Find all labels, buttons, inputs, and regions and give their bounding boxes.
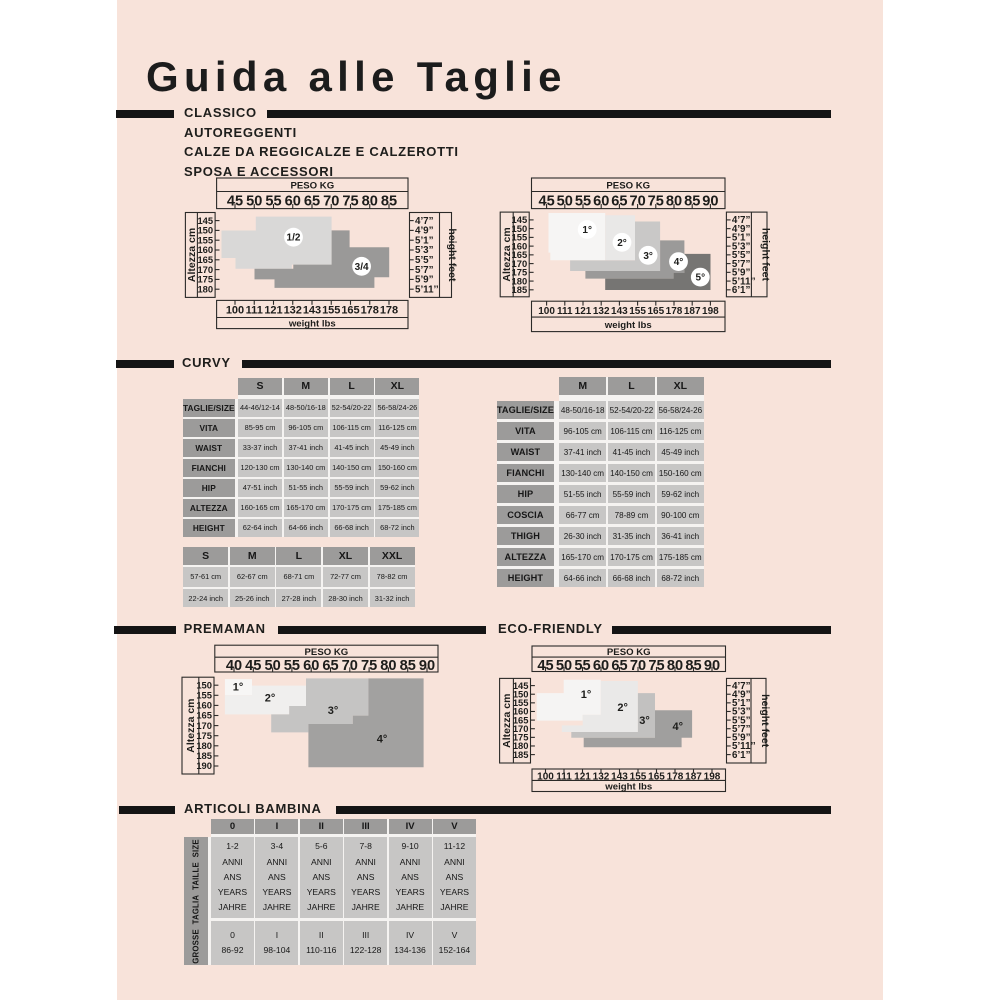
svg-text:PESO KG: PESO KG — [305, 647, 349, 658]
svg-text:height feet: height feet — [759, 694, 771, 748]
svg-text:178: 178 — [361, 305, 379, 317]
svg-text:weight lbs: weight lbs — [604, 781, 652, 792]
svg-text:100: 100 — [538, 306, 555, 317]
svg-text:165: 165 — [341, 305, 359, 317]
svg-text:132: 132 — [284, 305, 302, 317]
svg-text:5°: 5° — [696, 273, 706, 284]
svg-text:Altezza cm: Altezza cm — [185, 698, 197, 752]
svg-text:198: 198 — [702, 306, 719, 317]
svg-text:100: 100 — [226, 305, 244, 317]
svg-text:3°: 3° — [639, 715, 650, 727]
svg-text:178: 178 — [380, 305, 398, 317]
svg-text:180: 180 — [197, 283, 213, 294]
svg-text:1°: 1° — [581, 689, 592, 701]
svg-text:6’1”: 6’1” — [732, 285, 751, 296]
svg-text:132: 132 — [593, 306, 610, 317]
svg-text:111: 111 — [557, 306, 573, 317]
svg-text:121: 121 — [264, 305, 282, 317]
svg-text:2°: 2° — [617, 238, 627, 249]
svg-text:185: 185 — [512, 284, 528, 295]
svg-text:weight lbs: weight lbs — [604, 320, 652, 331]
svg-text:4°: 4° — [674, 257, 684, 268]
svg-text:187: 187 — [684, 306, 701, 317]
svg-text:121: 121 — [575, 306, 592, 317]
svg-text:6’1”: 6’1” — [732, 750, 751, 761]
svg-text:3°: 3° — [328, 705, 339, 717]
svg-text:155: 155 — [322, 305, 340, 317]
svg-text:3/4: 3/4 — [355, 262, 369, 273]
svg-text:155: 155 — [629, 306, 646, 317]
svg-text:185: 185 — [513, 749, 529, 760]
svg-text:PESO KG: PESO KG — [607, 647, 651, 658]
svg-text:PESO KG: PESO KG — [290, 180, 334, 191]
svg-text:4°: 4° — [377, 734, 388, 746]
svg-text:Altezza cm: Altezza cm — [186, 228, 198, 282]
svg-text:165: 165 — [647, 306, 664, 317]
svg-text:111: 111 — [246, 305, 263, 317]
svg-text:2°: 2° — [617, 702, 628, 714]
svg-text:178: 178 — [666, 306, 683, 317]
svg-text:3°: 3° — [643, 251, 653, 262]
svg-text:height feet: height feet — [446, 228, 458, 282]
svg-text:weight lbs: weight lbs — [288, 318, 336, 329]
svg-text:1°: 1° — [233, 682, 244, 694]
svg-text:5’11’’: 5’11’’ — [415, 284, 439, 295]
svg-text:1°: 1° — [582, 225, 592, 236]
svg-text:1/2: 1/2 — [287, 233, 301, 244]
svg-text:4°: 4° — [673, 721, 684, 733]
svg-text:PESO KG: PESO KG — [606, 180, 650, 191]
svg-text:143: 143 — [611, 306, 628, 317]
svg-text:Altezza cm: Altezza cm — [501, 694, 513, 748]
svg-text:190: 190 — [196, 760, 212, 771]
svg-text:height feet: height feet — [760, 228, 772, 282]
svg-text:143: 143 — [303, 305, 321, 317]
svg-text:2°: 2° — [265, 693, 276, 705]
